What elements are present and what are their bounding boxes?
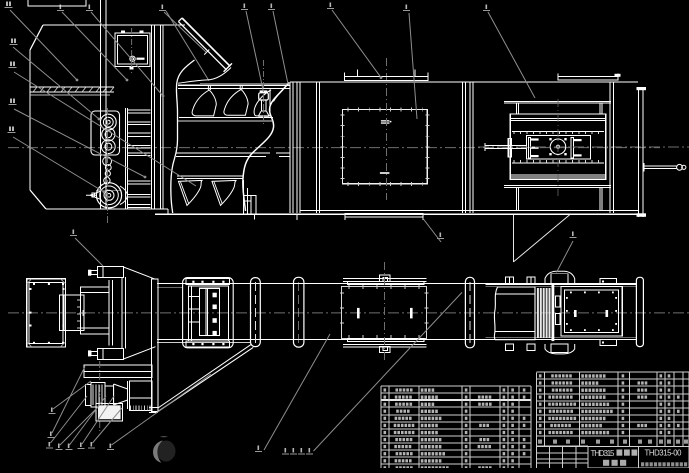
svg-text:THD315-00: THD315-00 [645, 449, 683, 458]
svg-text:THD315: THD315 [591, 449, 616, 458]
